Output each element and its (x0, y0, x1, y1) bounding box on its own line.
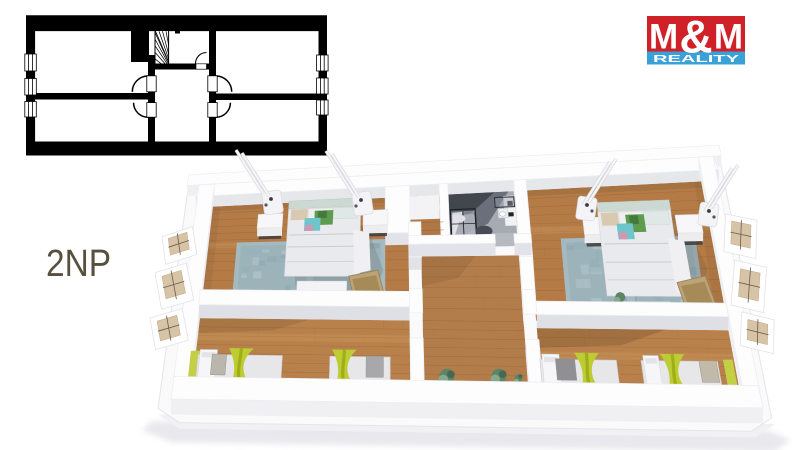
svg-text:2NP: 2NP (46, 243, 111, 285)
svg-text:M: M (714, 18, 743, 57)
svg-text:M: M (649, 18, 678, 57)
svg-text:REALITY: REALITY (653, 54, 740, 65)
